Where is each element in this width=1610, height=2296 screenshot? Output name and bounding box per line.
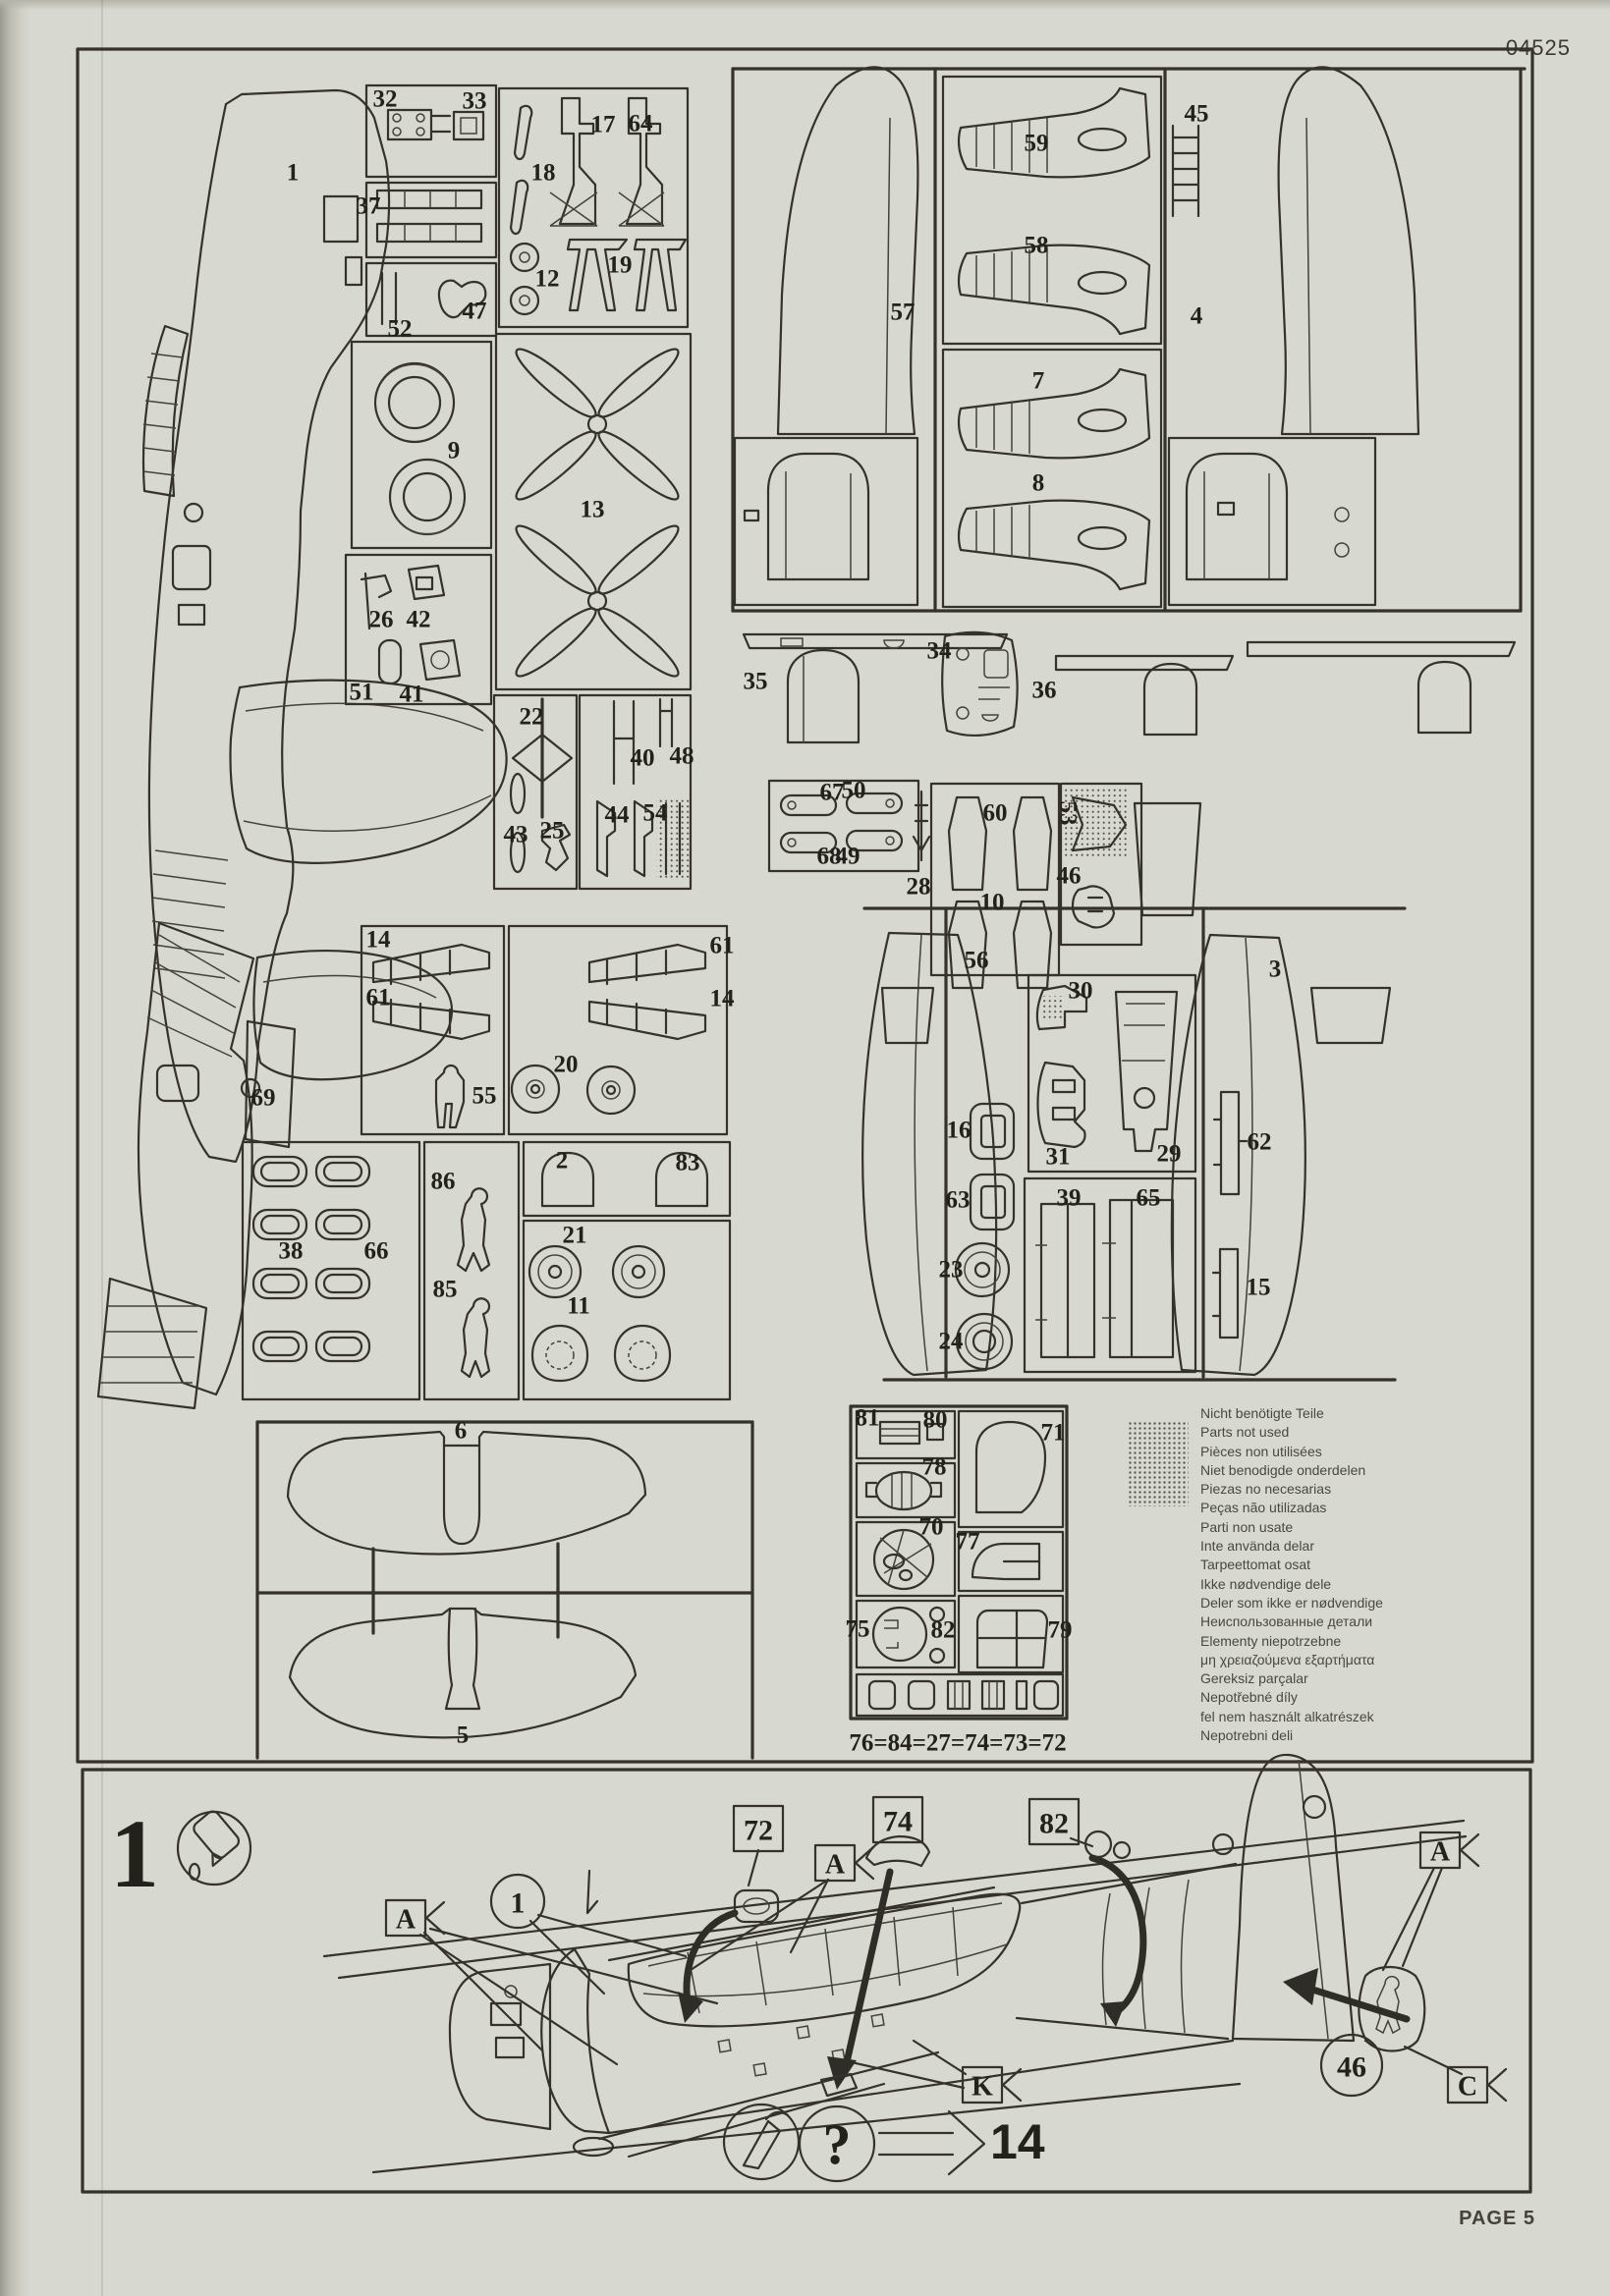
part-number-label: 24 — [939, 1329, 965, 1355]
sprue-not-used-box — [851, 1406, 1067, 1719]
sprue-lower-left-boxes — [243, 1142, 730, 1399]
svg-text:A: A — [1430, 1837, 1451, 1868]
part-number-label: 78 — [922, 1454, 947, 1481]
part-number-label: 23 — [939, 1257, 964, 1284]
svg-text:72: 72 — [744, 1815, 773, 1847]
paint-flag-callout: A — [815, 1845, 873, 1881]
part-number-label: 75 — [846, 1616, 870, 1643]
sprue-strips — [744, 632, 1515, 742]
part-number-label: 69 — [251, 1085, 276, 1112]
part-number-label: 82 — [931, 1617, 956, 1644]
sprue-wings-floats — [733, 67, 1525, 611]
part-number-label: 66 — [364, 1238, 389, 1265]
part-number-label: 41 — [400, 682, 424, 708]
svg-text:A: A — [396, 1905, 416, 1936]
part-number-label: 47 — [463, 299, 487, 325]
paint-flag-callout: A — [1420, 1832, 1478, 1868]
circled-part-callout: 1 — [491, 1875, 544, 1928]
part-number-label: 11 — [567, 1293, 590, 1320]
part-number-label: 5 — [457, 1722, 470, 1749]
part-number-label: 60 — [983, 800, 1008, 827]
part-number-label: 33 — [463, 88, 487, 115]
circled-part-callout: 46 — [1321, 2035, 1382, 2096]
part-number-label: 4 — [1191, 303, 1203, 330]
part-number-label: 71 — [1041, 1420, 1066, 1447]
part-number-label: 35 — [744, 669, 768, 695]
part-number-label: 37 — [357, 193, 381, 220]
part-number-label: 64 — [629, 111, 654, 137]
part-ladder-45 — [1173, 126, 1198, 216]
part-number-label: 62 — [1248, 1129, 1272, 1156]
part-number-label: 10 — [980, 890, 1005, 916]
part-number-label: 39 — [1057, 1185, 1082, 1212]
sprue-rack-boxes — [361, 926, 727, 1134]
part-number-label: 46 — [1057, 863, 1082, 890]
part-number-label: 21 — [563, 1223, 587, 1249]
sprue-floats-bottom — [862, 908, 1405, 1380]
part-number-label: 77 — [956, 1529, 980, 1556]
part-number-label: 58 — [1025, 233, 1049, 259]
part-number-label: 76=84=27=74=73=72 — [849, 1730, 1066, 1757]
part-number-label: 83 — [676, 1150, 700, 1176]
part-number-label: 59 — [1025, 131, 1049, 157]
part-number-label: 61 — [710, 933, 735, 959]
svg-text:82: 82 — [1039, 1808, 1069, 1840]
part-number-label: 80 — [923, 1407, 948, 1434]
part-number-label: 38 — [279, 1238, 304, 1265]
svg-text:K: K — [972, 2072, 993, 2103]
part-number-label: 42 — [407, 607, 431, 633]
part-number-label: 31 — [1046, 1144, 1071, 1171]
question-mark-icon: ? — [800, 2106, 874, 2181]
part-number-label: 14 — [366, 927, 392, 954]
part-number-label: 55 — [472, 1083, 497, 1110]
part-number-label: 48 — [670, 743, 694, 770]
boxed-part-callout: 74 — [873, 1797, 922, 1842]
svg-text:46: 46 — [1337, 2051, 1366, 2084]
part-number-label: 34 — [927, 638, 953, 665]
sprue-line-art: ? 13233371764181219475291326425141224048… — [0, 0, 1610, 2296]
part-number-label: 18 — [531, 160, 556, 187]
part-number-label: 14 — [710, 986, 736, 1012]
boxed-part-callout: 72 — [734, 1806, 783, 1851]
part-wing-57 — [778, 67, 917, 434]
part-fuselage-1 — [143, 90, 507, 1162]
svg-text:?: ? — [823, 2112, 852, 2176]
part-number-label: 54 — [643, 800, 669, 827]
part-number-label: 13 — [581, 497, 605, 523]
part-number-label: 45 — [1185, 101, 1209, 128]
svg-text:C: C — [1458, 2072, 1477, 2103]
part-number-label: 81 — [856, 1405, 880, 1432]
part-number-label: 51 — [350, 680, 374, 706]
step-assembly-drawing: ? — [178, 1755, 1466, 2181]
part-number-label: 85 — [433, 1277, 458, 1303]
part-number-label: 61 — [366, 985, 391, 1011]
goto-arrow-icon — [879, 2111, 984, 2174]
part-number-label: 7 — [1032, 368, 1045, 395]
svg-text:1: 1 — [511, 1887, 526, 1920]
sprue-fuselage-69 — [98, 923, 452, 1408]
part-number-label: 52 — [388, 316, 413, 343]
part-number-label: 49 — [836, 844, 861, 870]
part-number-label: 16 — [947, 1118, 972, 1144]
part-number-label: 2 — [556, 1148, 569, 1175]
part-number-label: 12 — [535, 266, 560, 293]
part-number-label: 44 — [605, 802, 631, 829]
part-number-label: 50 — [842, 778, 866, 804]
sprue-wings-65 — [257, 1422, 752, 1758]
part-number-label: 40 — [631, 745, 655, 772]
part-number-label: 79 — [1048, 1617, 1073, 1644]
part-number-label: 19 — [608, 252, 633, 279]
part-number-label: 70 — [919, 1514, 944, 1541]
part-number-label: 8 — [1032, 470, 1045, 497]
part-number-label: 28 — [907, 874, 931, 901]
awl-icon — [724, 2105, 799, 2179]
part-number-label: 65 — [1137, 1185, 1161, 1212]
part-number-label: 9 — [448, 438, 461, 465]
part-number-label: 17 — [591, 112, 616, 138]
part-number-label: 63 — [946, 1187, 971, 1214]
part-number-label: 25 — [540, 818, 565, 845]
part-number-label: 30 — [1069, 978, 1093, 1005]
part-number-label: 86 — [431, 1169, 456, 1195]
part-number-label: 29 — [1157, 1141, 1182, 1168]
part-number-label: 1 — [287, 160, 300, 187]
main-parts-frame — [78, 49, 1532, 1762]
part-number-label: 22 — [520, 704, 544, 731]
part-number-label: 43 — [504, 822, 528, 848]
part-number-label: 36 — [1032, 678, 1057, 704]
part-number-label: 57 — [891, 300, 916, 326]
instruction-sheet-page: 04525 PAGE 5 1 14 Nicht benötigte TeileP… — [0, 0, 1610, 2296]
part-number-label: 32 — [373, 86, 398, 113]
part-number-label: 15 — [1247, 1275, 1271, 1301]
part-number-label: 20 — [554, 1052, 579, 1078]
part-number-label: 53 — [1055, 801, 1082, 826]
part-number-label: 6 — [455, 1418, 468, 1445]
svg-text:74: 74 — [883, 1806, 913, 1838]
part-wing-4 — [1279, 67, 1418, 434]
part-number-label: 56 — [965, 948, 989, 974]
part-number-label: 26 — [369, 607, 394, 633]
svg-text:A: A — [825, 1850, 846, 1881]
part-number-label: 3 — [1269, 957, 1282, 983]
